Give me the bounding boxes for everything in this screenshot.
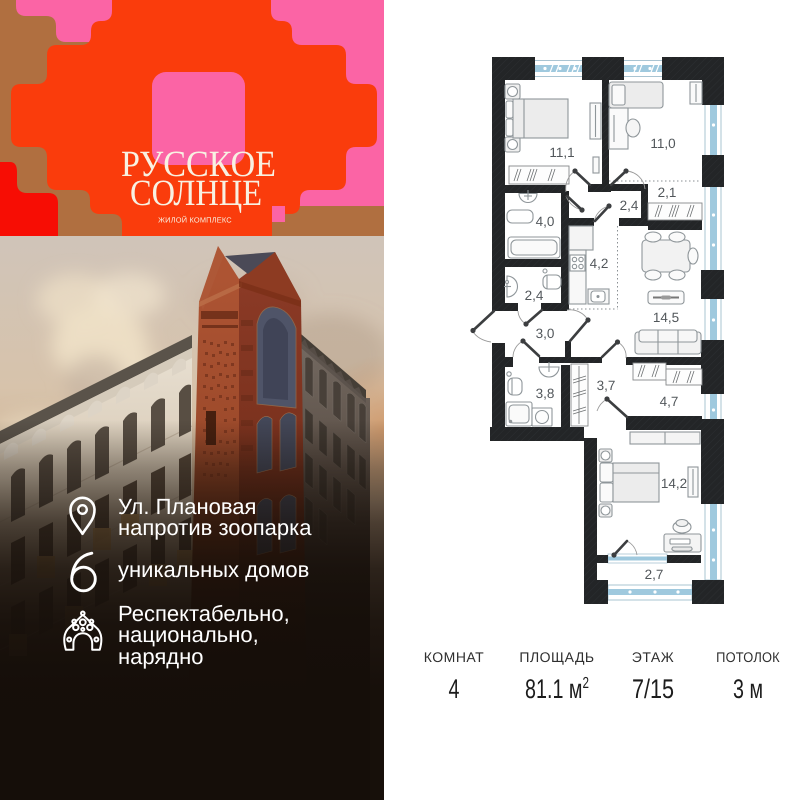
svg-text:4,0: 4,0 <box>536 214 555 229</box>
svg-text:3,8: 3,8 <box>536 386 555 401</box>
svg-text:2,7: 2,7 <box>645 567 664 582</box>
svg-text:14,2: 14,2 <box>661 476 687 491</box>
svg-text:14,5: 14,5 <box>653 310 679 325</box>
svg-text:ЖИЛОЙ КОМПЛЕКС: ЖИЛОЙ КОМПЛЕКС <box>158 216 232 225</box>
svg-text:СОЛНЦЕ: СОЛНЦЕ <box>130 173 262 214</box>
svg-text:3,0: 3,0 <box>536 326 555 341</box>
svg-text:2,4: 2,4 <box>620 198 639 213</box>
svg-text:2,1: 2,1 <box>658 185 677 200</box>
svg-text:2,4: 2,4 <box>525 288 544 303</box>
svg-text:4,7: 4,7 <box>660 394 679 409</box>
svg-text:3,7: 3,7 <box>597 378 616 393</box>
svg-text:11,0: 11,0 <box>650 136 675 151</box>
svg-text:11,1: 11,1 <box>549 145 574 160</box>
svg-text:4,2: 4,2 <box>590 256 609 271</box>
